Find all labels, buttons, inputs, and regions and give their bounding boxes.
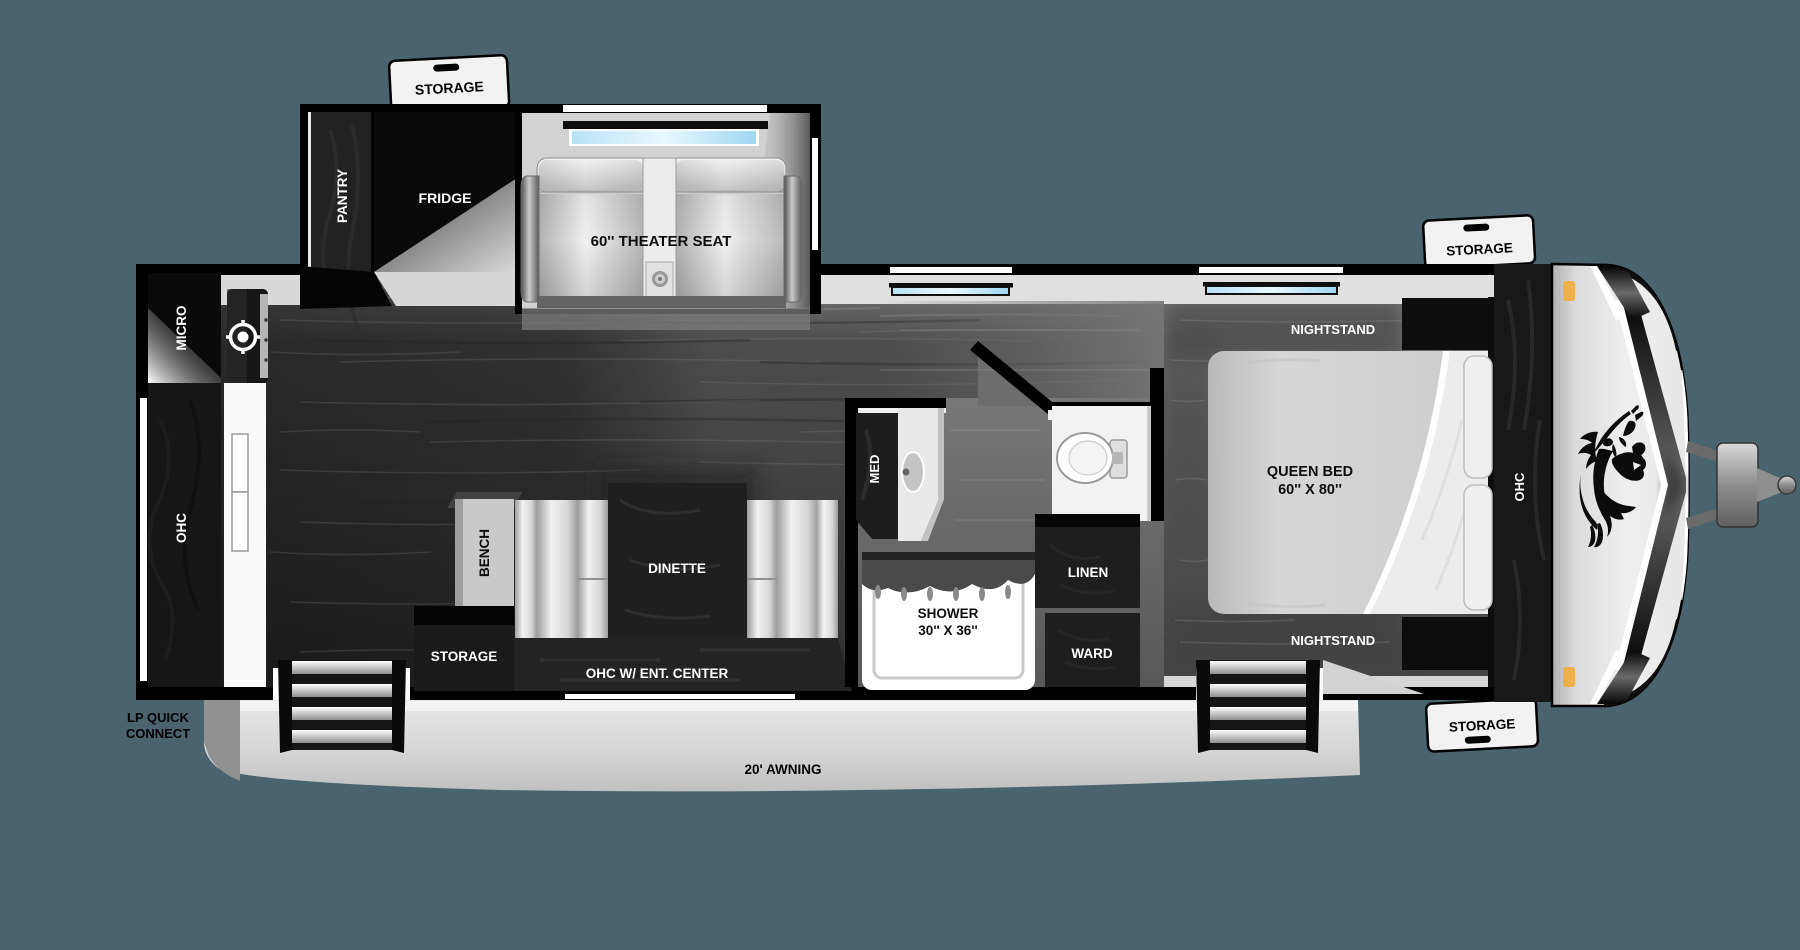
svg-text:OHC: OHC — [1512, 472, 1527, 502]
svg-text:OHC: OHC — [174, 513, 189, 543]
svg-text:PANTRY: PANTRY — [335, 169, 350, 223]
svg-text:LP QUICK: LP QUICK — [127, 710, 189, 725]
svg-text:SHOWER: SHOWER — [918, 606, 979, 621]
svg-text:60'' X 80'': 60'' X 80'' — [1278, 482, 1342, 498]
svg-text:30'' X 36'': 30'' X 36'' — [918, 623, 977, 638]
svg-text:DINETTE: DINETTE — [648, 561, 706, 576]
svg-text:CONNECT: CONNECT — [126, 726, 190, 741]
svg-text:MED: MED — [867, 455, 882, 484]
svg-text:NIGHTSTAND: NIGHTSTAND — [1291, 322, 1375, 337]
svg-text:WARD: WARD — [1071, 646, 1112, 661]
svg-text:STORAGE: STORAGE — [431, 649, 498, 664]
svg-text:OHC W/ ENT. CENTER: OHC W/ ENT. CENTER — [586, 666, 729, 681]
svg-text:LINEN: LINEN — [1068, 565, 1109, 580]
svg-text:MICRO: MICRO — [174, 306, 189, 351]
svg-text:NIGHTSTAND: NIGHTSTAND — [1291, 633, 1375, 648]
svg-text:20' AWNING: 20' AWNING — [745, 762, 822, 777]
svg-text:QUEEN BED: QUEEN BED — [1267, 464, 1353, 480]
svg-text:60'' THEATER SEAT: 60'' THEATER SEAT — [591, 233, 732, 250]
svg-text:FRIDGE: FRIDGE — [419, 190, 472, 206]
svg-text:BENCH: BENCH — [477, 529, 492, 577]
